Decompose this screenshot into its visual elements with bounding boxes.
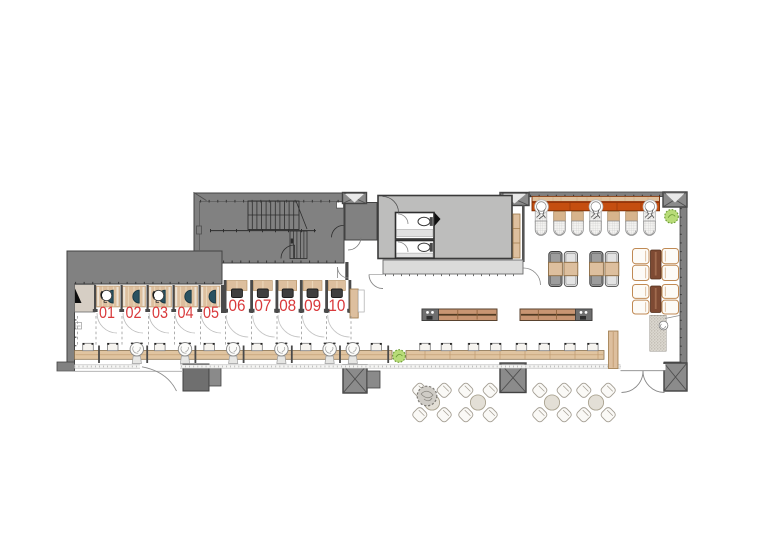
svg-text:10: 10 bbox=[328, 296, 345, 315]
svg-text:04: 04 bbox=[178, 303, 194, 322]
svg-text:05: 05 bbox=[203, 303, 219, 322]
svg-text:02: 02 bbox=[126, 303, 142, 322]
svg-text:06: 06 bbox=[229, 296, 246, 315]
svg-text:09: 09 bbox=[304, 296, 321, 315]
svg-text:07: 07 bbox=[254, 296, 271, 315]
svg-text:01: 01 bbox=[99, 303, 115, 322]
svg-text:03: 03 bbox=[152, 303, 168, 322]
svg-text:08: 08 bbox=[279, 296, 296, 315]
